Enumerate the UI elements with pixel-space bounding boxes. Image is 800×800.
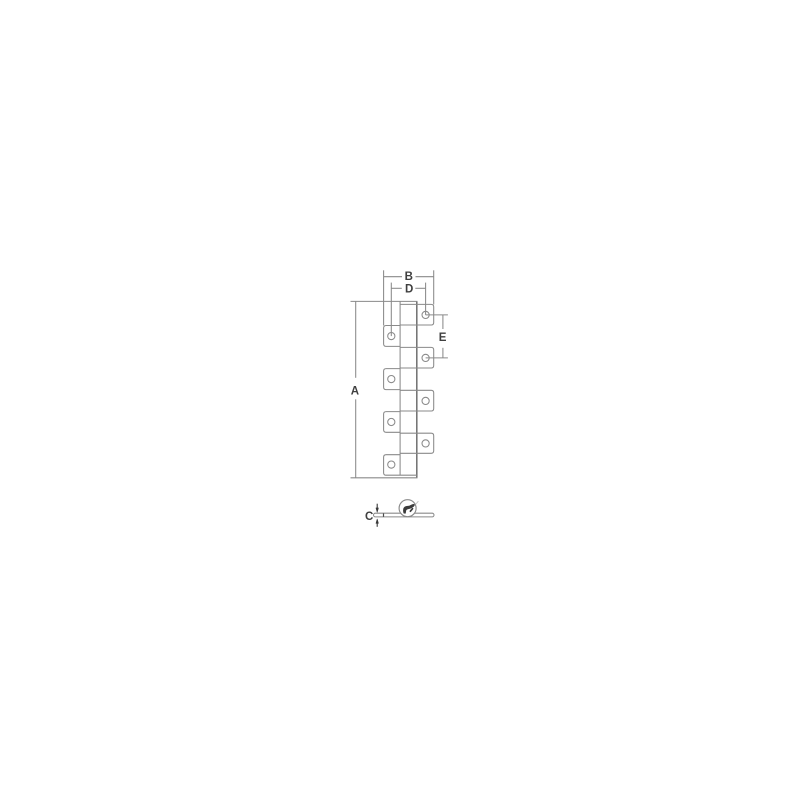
- svg-text:A: A: [351, 385, 359, 397]
- svg-text:C: C: [365, 511, 373, 523]
- svg-text:D: D: [405, 283, 413, 295]
- svg-text:E: E: [439, 332, 447, 344]
- svg-text:B: B: [405, 271, 413, 283]
